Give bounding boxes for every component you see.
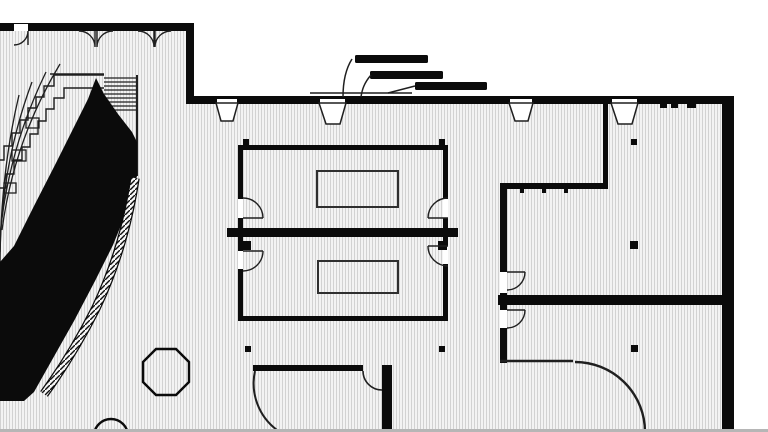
door-gap-room-a-left [238,199,243,218]
canopy-wall-band [372,100,412,104]
canopy-bar-3 [415,82,487,90]
door-gap-room-b-left [238,251,243,269]
right-room-wall-upper-vertical [603,100,608,188]
column [242,241,251,250]
wall-middle-thick [227,228,458,237]
outside-right-mask [734,0,768,432]
door-gap-right-room-upper [500,272,507,293]
floor-plan-svg [0,0,768,432]
wall-left-vertical [186,23,194,103]
column [245,346,251,352]
window-tick-6 [564,189,568,193]
floor-plan-canvas [0,0,768,432]
wall-top-left [0,23,193,31]
column [51,344,56,349]
bottom-room-wall-top [253,365,363,371]
door-gap-room-a-right [443,199,448,218]
column [439,346,445,352]
door-gap-entry-left [14,24,28,31]
column [631,139,637,145]
window-tick-2 [671,103,678,108]
window-tick-1 [660,103,667,108]
column [630,241,638,249]
window-tick-3 [687,103,696,108]
column [631,345,638,352]
canopy-bar-1 [355,55,428,63]
right-room-wall-horizontal [500,183,608,189]
room-b-wall-bottom [238,316,448,321]
column [439,139,445,145]
room-a-wall-top [238,145,448,150]
bottom-room-wall-right [382,365,392,429]
canopy-bar-2 [370,71,443,79]
outside-upper-right-mask [194,0,768,96]
wall-right-exterior [722,96,734,429]
window-tick-5 [542,189,546,193]
door-gap-right-room-lower [500,310,507,328]
wall-top-main [186,96,734,104]
column [243,139,249,145]
right-room-wall-thick [498,295,734,305]
window-tick-4 [520,189,524,193]
